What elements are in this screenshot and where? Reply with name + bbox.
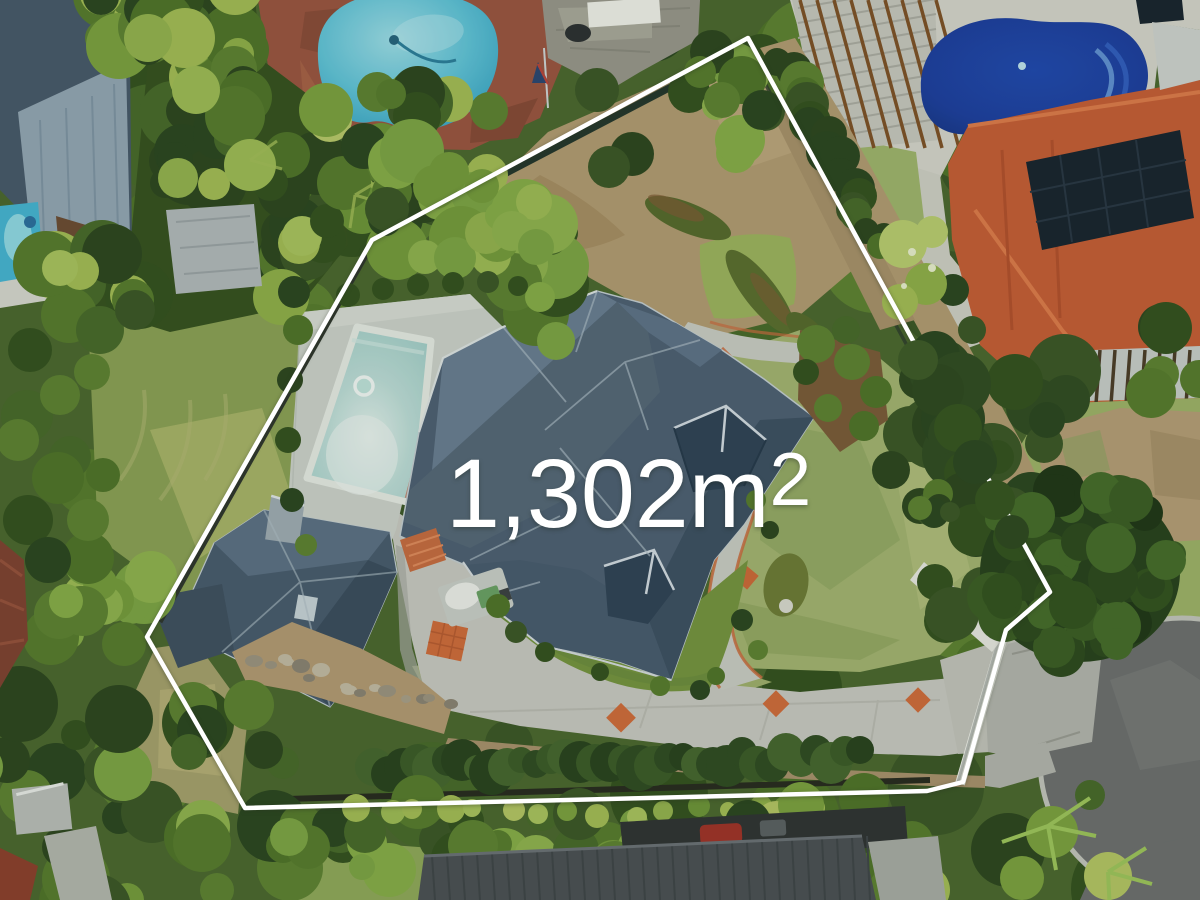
- svg-text:1,302m2: 1,302m2: [446, 437, 811, 548]
